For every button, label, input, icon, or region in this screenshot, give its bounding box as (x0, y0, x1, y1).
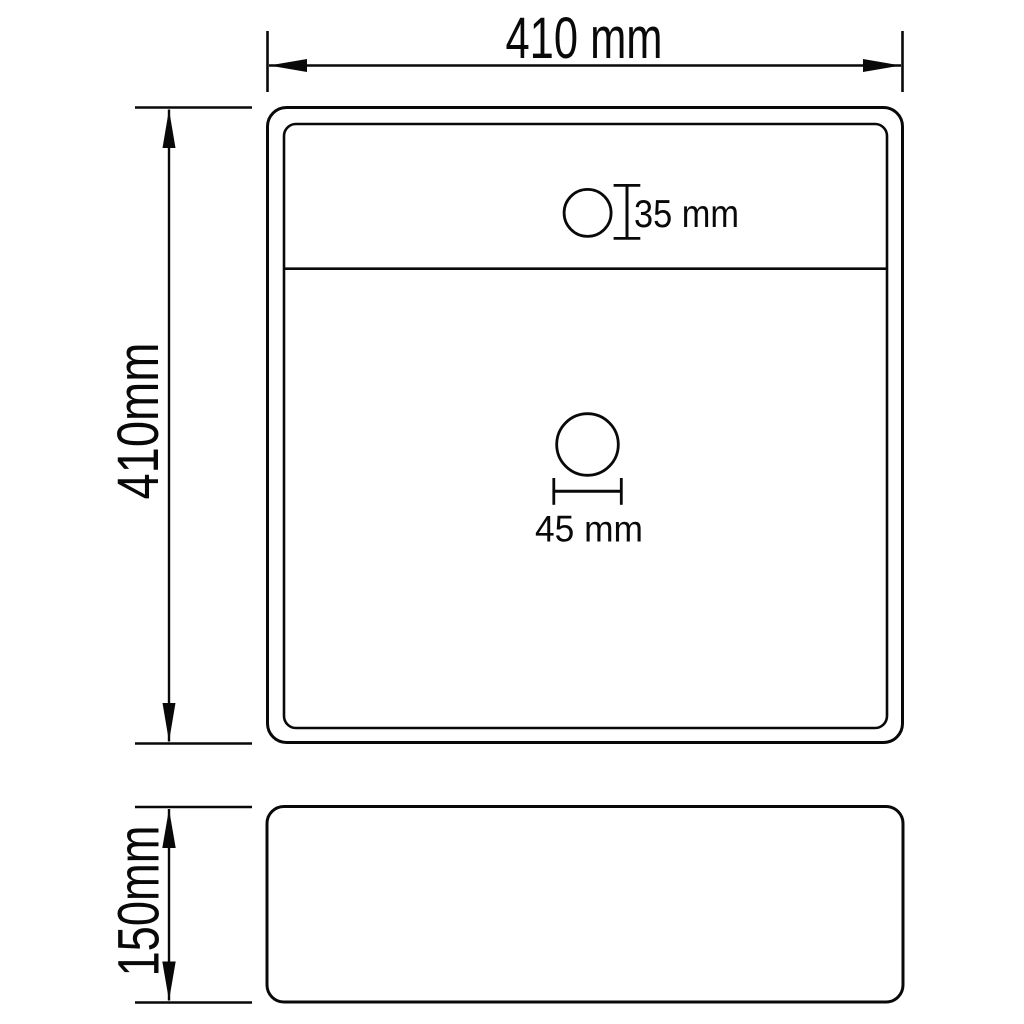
svg-text:410mm: 410mm (106, 343, 171, 500)
svg-text:150mm: 150mm (107, 826, 172, 977)
svg-text:45 mm: 45 mm (535, 508, 643, 550)
svg-text:410 mm: 410 mm (506, 6, 663, 71)
svg-text:35 mm: 35 mm (634, 193, 739, 236)
